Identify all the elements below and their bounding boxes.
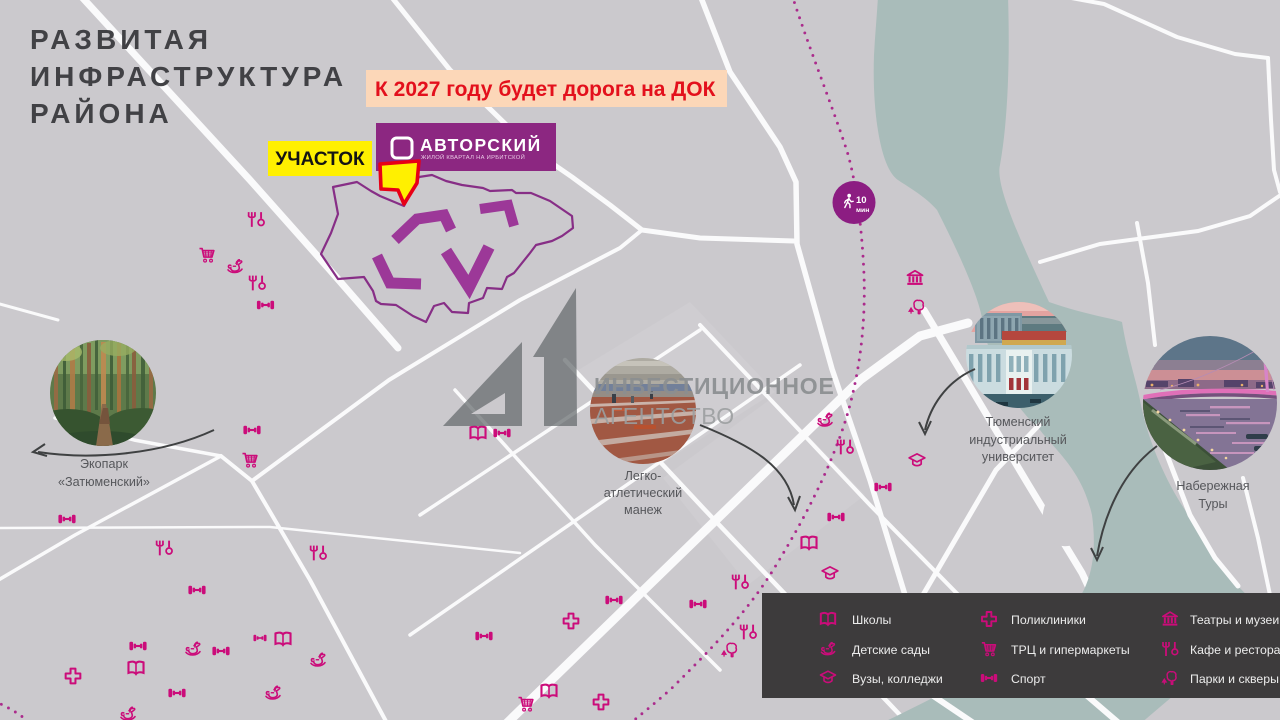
svg-text:Тюменский: Тюменский <box>986 415 1051 429</box>
svg-text:АВТОРСКИЙ: АВТОРСКИЙ <box>420 134 542 155</box>
svg-text:индустриальный: индустриальный <box>969 433 1067 447</box>
svg-text:ИНФРАСТРУКТУРА: ИНФРАСТРУКТУРА <box>30 61 347 92</box>
svg-text:10: 10 <box>856 195 867 206</box>
svg-text:ТРЦ и гипермаркеты: ТРЦ и гипермаркеты <box>1011 643 1130 657</box>
svg-text:Легко-: Легко- <box>625 469 662 483</box>
svg-text:К 2027 году будет дорога на ДО: К 2027 году будет дорога на ДОК <box>375 78 716 101</box>
svg-text:мин: мин <box>856 207 869 214</box>
svg-text:УЧАСТОК: УЧАСТОК <box>275 149 365 170</box>
svg-text:«Затюменский»: «Затюменский» <box>58 475 150 489</box>
svg-text:Туры: Туры <box>1198 497 1227 511</box>
svg-text:манеж: манеж <box>624 503 662 517</box>
svg-text:РАЗВИТАЯ: РАЗВИТАЯ <box>30 24 212 55</box>
svg-text:Набережная: Набережная <box>1176 479 1249 493</box>
svg-text:Спорт: Спорт <box>1011 672 1046 686</box>
svg-text:атлетический: атлетический <box>604 486 682 500</box>
svg-text:РАЙОНА: РАЙОНА <box>30 97 173 129</box>
svg-text:Парки и скверы: Парки и скверы <box>1190 672 1279 686</box>
svg-text:Детские сады: Детские сады <box>852 643 930 657</box>
svg-text:Школы: Школы <box>852 613 891 627</box>
svg-text:университет: университет <box>982 450 1054 464</box>
svg-text:Кафе и рестораны: Кафе и рестораны <box>1190 643 1280 657</box>
svg-text:Поликлиники: Поликлиники <box>1011 613 1086 627</box>
svg-text:Экопарк: Экопарк <box>80 457 129 471</box>
svg-text:Театры и музеи: Театры и музеи <box>1190 613 1279 627</box>
svg-text:ЖИЛОЙ КВАРТАЛ НА ИРБИТСКОЙ: ЖИЛОЙ КВАРТАЛ НА ИРБИТСКОЙ <box>421 153 525 161</box>
svg-text:Вузы, колледжи: Вузы, колледжи <box>852 672 943 686</box>
svg-text:ИНВЕСТИЦИОННОЕ: ИНВЕСТИЦИОННОЕ <box>594 373 835 399</box>
svg-text:АГЕНТСТВО: АГЕНТСТВО <box>594 403 735 429</box>
